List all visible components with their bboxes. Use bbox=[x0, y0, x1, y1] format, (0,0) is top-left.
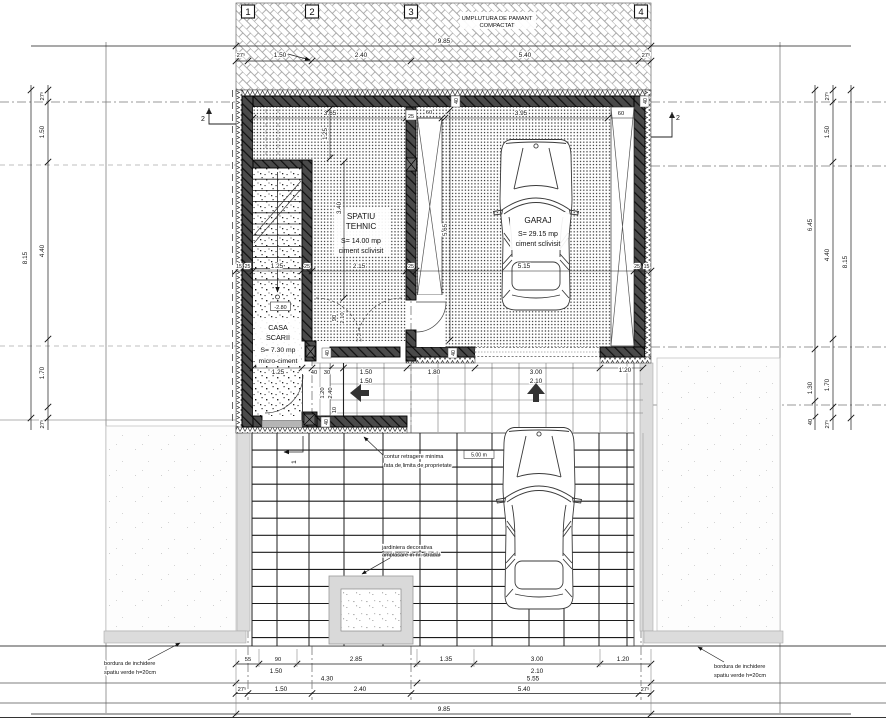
svg-text:15: 15 bbox=[236, 264, 242, 270]
svg-text:5.65: 5.65 bbox=[442, 223, 449, 236]
svg-text:27⁵: 27⁵ bbox=[39, 419, 46, 428]
svg-text:3: 3 bbox=[408, 7, 413, 18]
svg-text:1: 1 bbox=[291, 460, 298, 464]
svg-text:27⁵: 27⁵ bbox=[237, 52, 246, 59]
svg-text:1.50: 1.50 bbox=[39, 125, 46, 138]
svg-text:3.95: 3.95 bbox=[515, 110, 528, 117]
svg-text:2.40: 2.40 bbox=[354, 686, 367, 693]
svg-text:40: 40 bbox=[451, 350, 457, 356]
svg-text:27⁵: 27⁵ bbox=[824, 419, 831, 428]
svg-text:1.20: 1.20 bbox=[619, 367, 632, 374]
svg-text:1.50: 1.50 bbox=[360, 369, 373, 376]
svg-text:2.10: 2.10 bbox=[531, 668, 544, 675]
svg-text:30: 30 bbox=[324, 370, 330, 376]
svg-text:2: 2 bbox=[309, 7, 314, 18]
svg-text:8.15: 8.15 bbox=[842, 255, 849, 268]
svg-text:1: 1 bbox=[245, 7, 250, 18]
svg-text:2.40: 2.40 bbox=[328, 387, 334, 398]
svg-text:CASA: CASA bbox=[268, 323, 288, 332]
svg-text:25: 25 bbox=[408, 114, 414, 120]
svg-text:GARAJ: GARAJ bbox=[524, 216, 551, 225]
svg-text:4: 4 bbox=[638, 7, 643, 18]
svg-text:2.85: 2.85 bbox=[350, 656, 363, 663]
svg-text:10: 10 bbox=[332, 407, 338, 413]
svg-text:90: 90 bbox=[275, 657, 281, 663]
svg-text:1.50: 1.50 bbox=[824, 125, 831, 138]
svg-text:1.30: 1.30 bbox=[807, 381, 814, 394]
svg-text:1.50: 1.50 bbox=[275, 686, 288, 693]
svg-text:1.25: 1.25 bbox=[271, 263, 284, 270]
svg-text:3.00: 3.00 bbox=[531, 656, 544, 663]
svg-text:1.20: 1.20 bbox=[617, 656, 630, 663]
svg-text:TEHNIC: TEHNIC bbox=[346, 222, 377, 231]
svg-text:S= 29.15 mp: S= 29.15 mp bbox=[518, 231, 558, 238]
svg-text:ciment sclivisit: ciment sclivisit bbox=[339, 248, 384, 255]
svg-text:25: 25 bbox=[408, 264, 414, 270]
svg-text:2.15: 2.15 bbox=[353, 263, 366, 270]
svg-text:40: 40 bbox=[325, 350, 331, 356]
svg-text:1.50: 1.50 bbox=[270, 668, 283, 675]
svg-text:SPATIU: SPATIU bbox=[347, 212, 375, 221]
svg-text:40: 40 bbox=[324, 419, 330, 425]
svg-text:55: 55 bbox=[245, 657, 251, 663]
svg-text:2.10: 2.10 bbox=[340, 312, 346, 323]
svg-text:2: 2 bbox=[676, 115, 680, 122]
svg-text:1.35: 1.35 bbox=[440, 656, 453, 663]
svg-text:4.30: 4.30 bbox=[321, 676, 334, 683]
svg-text:1.20: 1.20 bbox=[320, 387, 326, 398]
svg-text:15: 15 bbox=[644, 264, 650, 270]
svg-text:bordura de inchidere: bordura de inchidere bbox=[104, 661, 155, 667]
svg-text:S= 14.00 mp: S= 14.00 mp bbox=[341, 238, 381, 245]
svg-text:40: 40 bbox=[808, 419, 814, 425]
svg-text:27⁵: 27⁵ bbox=[824, 91, 831, 100]
svg-text:2: 2 bbox=[201, 116, 205, 123]
svg-text:3.00: 3.00 bbox=[530, 369, 543, 376]
svg-text:90: 90 bbox=[332, 315, 338, 321]
svg-text:6.45: 6.45 bbox=[807, 218, 814, 231]
svg-text:3.40: 3.40 bbox=[336, 201, 343, 214]
svg-text:60: 60 bbox=[618, 111, 624, 117]
svg-text:5.00 m: 5.00 m bbox=[471, 453, 487, 459]
svg-text:COMPACTAT: COMPACTAT bbox=[479, 23, 515, 29]
svg-text:4.40: 4.40 bbox=[824, 248, 831, 261]
svg-text:40: 40 bbox=[311, 370, 317, 376]
svg-text:25: 25 bbox=[634, 264, 640, 270]
svg-text:contur retragere minima: contur retragere minima bbox=[384, 454, 444, 460]
svg-text:25: 25 bbox=[304, 264, 310, 270]
svg-text:2.40: 2.40 bbox=[355, 52, 368, 59]
svg-text:1.25: 1.25 bbox=[272, 369, 285, 376]
svg-text:9.85: 9.85 bbox=[438, 38, 451, 45]
svg-text:5.40: 5.40 bbox=[519, 52, 532, 59]
svg-text:1.25: 1.25 bbox=[323, 128, 329, 140]
svg-text:ciment sclivisit: ciment sclivisit bbox=[516, 241, 561, 248]
svg-text:4.40: 4.40 bbox=[39, 244, 46, 257]
svg-text:1.50: 1.50 bbox=[274, 52, 287, 59]
svg-text:spatiu verde h=20cm: spatiu verde h=20cm bbox=[104, 670, 156, 676]
svg-text:40: 40 bbox=[454, 98, 460, 104]
svg-text:fata de limita de proprietate: fata de limita de proprietate bbox=[384, 463, 452, 469]
svg-text:-2.80: -2.80 bbox=[274, 305, 286, 311]
svg-text:25: 25 bbox=[245, 264, 251, 270]
svg-text:bordura de inchidere: bordura de inchidere bbox=[714, 664, 765, 670]
svg-text:5.40: 5.40 bbox=[518, 686, 531, 693]
svg-text:60: 60 bbox=[426, 110, 432, 116]
svg-text:5.15: 5.15 bbox=[518, 263, 531, 270]
svg-text:micro-ciment: micro-ciment bbox=[259, 358, 298, 365]
svg-text:5.55: 5.55 bbox=[527, 676, 540, 683]
svg-text:UMPLUTURA DE PAMANT: UMPLUTURA DE PAMANT bbox=[462, 16, 533, 22]
svg-text:27⁵: 27⁵ bbox=[642, 52, 651, 59]
svg-text:amplasare in nr. stradal: amplasare in nr. stradal bbox=[382, 553, 440, 559]
svg-text:1.50: 1.50 bbox=[360, 378, 373, 385]
svg-text:spatiu verde h=20cm: spatiu verde h=20cm bbox=[714, 673, 766, 679]
svg-text:9.85: 9.85 bbox=[438, 706, 451, 713]
svg-text:27⁵: 27⁵ bbox=[238, 686, 247, 693]
svg-text:8.15: 8.15 bbox=[22, 251, 29, 264]
svg-text:40: 40 bbox=[643, 98, 649, 104]
svg-text:S= 7.30 mp: S= 7.30 mp bbox=[261, 347, 296, 354]
svg-text:SCARII: SCARII bbox=[266, 333, 290, 342]
svg-text:1.70: 1.70 bbox=[39, 366, 46, 379]
svg-text:jardiniera decorativa: jardiniera decorativa bbox=[381, 545, 433, 551]
svg-text:27⁵: 27⁵ bbox=[641, 686, 650, 693]
svg-text:27⁵: 27⁵ bbox=[39, 91, 46, 100]
svg-text:1.80: 1.80 bbox=[428, 369, 441, 376]
svg-text:1.70: 1.70 bbox=[824, 378, 831, 391]
